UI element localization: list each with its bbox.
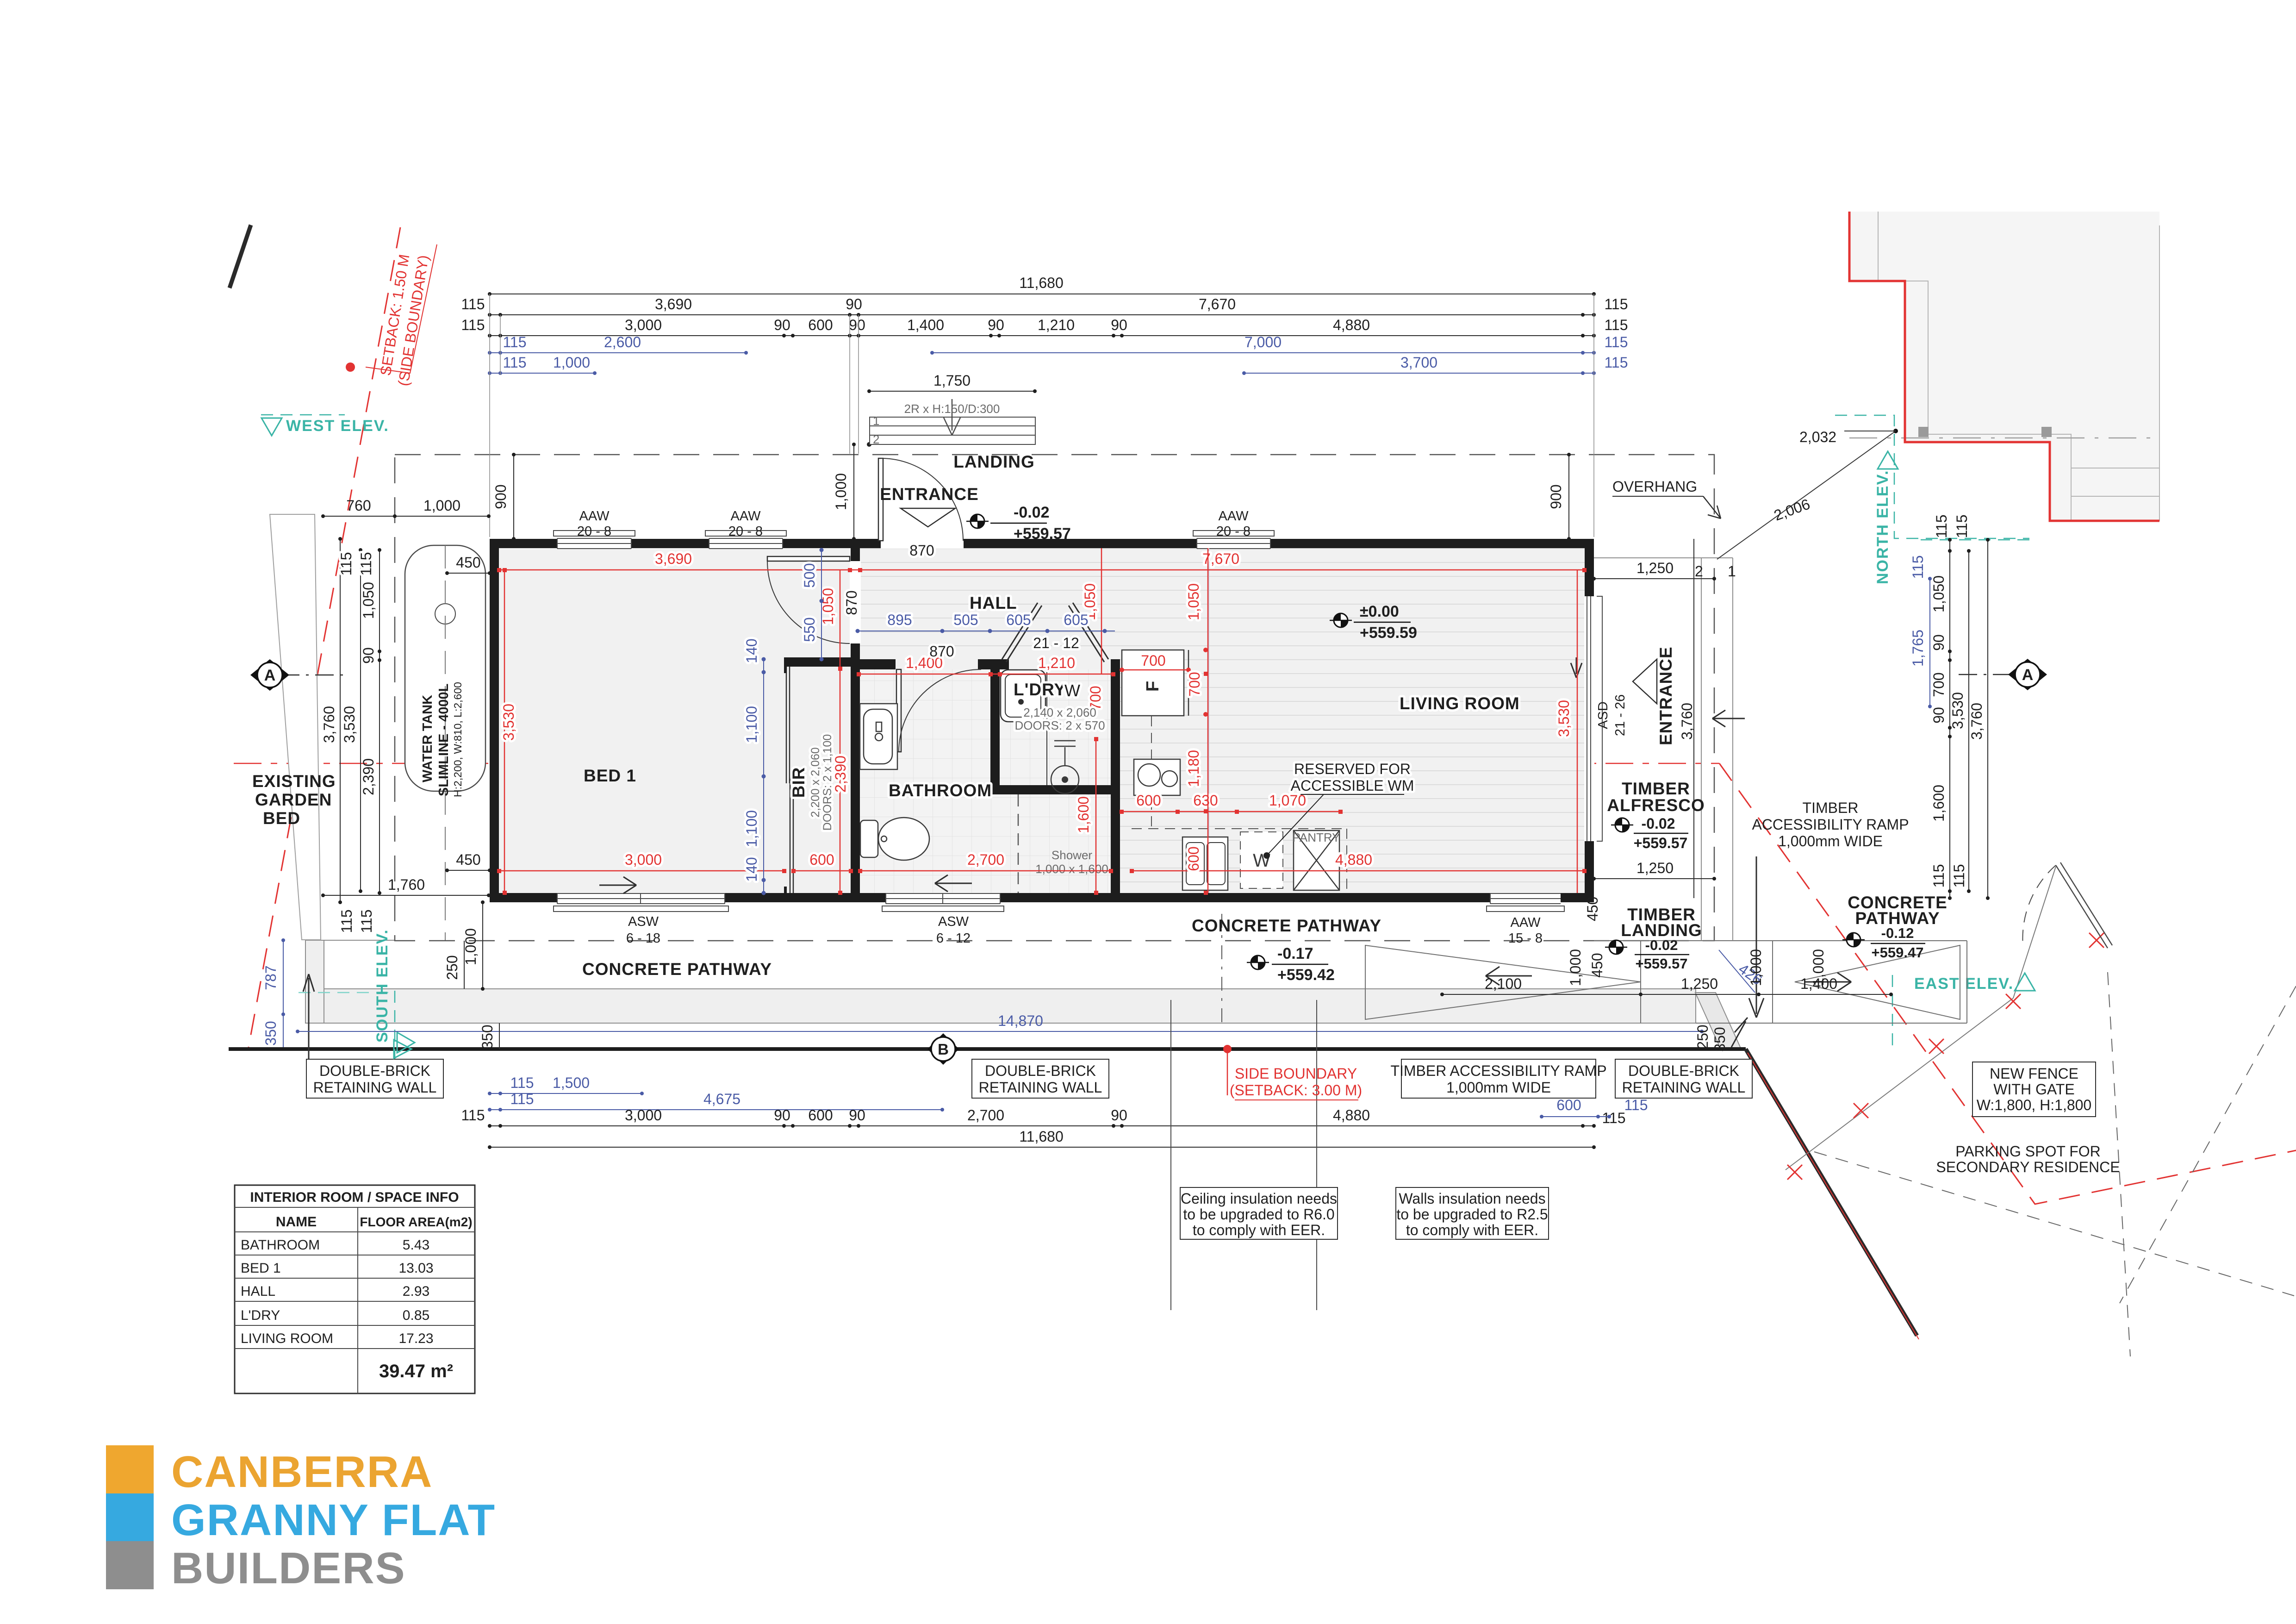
svg-text:SIDE BOUNDARY: SIDE BOUNDARY (1235, 1065, 1357, 1082)
svg-text:2R x H:150/D:300: 2R x H:150/D:300 (904, 402, 1000, 416)
svg-text:3,530: 3,530 (1949, 692, 1966, 729)
svg-text:TIMBER: TIMBER (1622, 779, 1690, 798)
svg-text:115: 115 (461, 317, 485, 333)
svg-text:4,880: 4,880 (1333, 317, 1370, 333)
svg-text:SLIMLINE - 4000L: SLIMLINE - 4000L (436, 684, 451, 796)
svg-text:HALL: HALL (970, 593, 1017, 612)
svg-text:1,600: 1,600 (1075, 796, 1092, 833)
svg-text:1: 1 (873, 414, 879, 428)
svg-text:7,670: 7,670 (1199, 296, 1236, 312)
svg-text:90: 90 (1930, 634, 1947, 651)
svg-text:AAW: AAW (1219, 509, 1249, 524)
svg-text:to be upgraded to R6.0: to be upgraded to R6.0 (1183, 1206, 1334, 1223)
svg-text:2.93: 2.93 (403, 1284, 429, 1299)
svg-text:20 - 8: 20 - 8 (1216, 524, 1251, 539)
svg-text:115: 115 (1933, 514, 1950, 538)
svg-text:ACCESSIBILITY RAMP: ACCESSIBILITY RAMP (1752, 816, 1909, 833)
svg-text:±0.00: ±0.00 (1360, 603, 1399, 620)
svg-text:ASD: ASD (1596, 701, 1611, 729)
svg-text:6 - 12: 6 - 12 (936, 931, 971, 946)
svg-text:140: 140 (743, 857, 760, 881)
svg-text:Shower: Shower (1052, 848, 1092, 862)
svg-text:Walls insulation needs: Walls insulation needs (1399, 1190, 1545, 1207)
svg-text:1,750: 1,750 (933, 372, 971, 389)
svg-text:115: 115 (1604, 317, 1628, 333)
svg-text:WATER TANK: WATER TANK (420, 695, 435, 782)
svg-text:90: 90 (988, 317, 1004, 333)
svg-text:Ceiling insulation needs: Ceiling insulation needs (1181, 1190, 1337, 1207)
svg-text:1,050: 1,050 (1185, 583, 1202, 620)
svg-text:115: 115 (1910, 555, 1926, 579)
svg-text:WITH GATE: WITH GATE (1993, 1081, 2074, 1098)
svg-text:90: 90 (849, 317, 865, 333)
svg-text:3,760: 3,760 (1968, 703, 1985, 740)
svg-text:1,000: 1,000 (833, 473, 849, 510)
svg-text:350: 350 (1711, 1027, 1728, 1051)
svg-text:90: 90 (1930, 707, 1947, 724)
svg-text:HALL: HALL (241, 1284, 275, 1299)
svg-text:90: 90 (1111, 1107, 1127, 1124)
svg-text:1,250: 1,250 (1636, 560, 1674, 576)
svg-text:TIMBER: TIMBER (1803, 800, 1859, 816)
svg-text:115: 115 (461, 296, 485, 312)
svg-text:EAST ELEV.: EAST ELEV. (1914, 975, 2014, 993)
svg-text:ASW: ASW (628, 914, 659, 929)
svg-text:DOORS: 2 x 570: DOORS: 2 x 570 (1014, 718, 1105, 732)
svg-text:115: 115 (1604, 334, 1628, 350)
svg-text:ENTRANCE: ENTRANCE (1656, 646, 1675, 745)
svg-text:AAW: AAW (579, 509, 610, 524)
svg-text:20 - 8: 20 - 8 (577, 524, 611, 539)
svg-text:-0.02: -0.02 (1014, 504, 1050, 521)
svg-text:AAW: AAW (731, 509, 761, 524)
svg-text:350: 350 (262, 1021, 279, 1045)
svg-text:870: 870 (843, 590, 860, 615)
svg-text:870: 870 (909, 542, 934, 559)
svg-text:+559.57: +559.57 (1634, 835, 1688, 851)
svg-text:1,000: 1,000 (1567, 949, 1584, 986)
svg-text:OVERHANG: OVERHANG (1612, 478, 1697, 495)
svg-text:3,530: 3,530 (1556, 700, 1572, 737)
svg-text:115: 115 (461, 1107, 485, 1124)
svg-text:115: 115 (1624, 1097, 1648, 1113)
svg-text:350: 350 (479, 1024, 496, 1049)
svg-text:115: 115 (1930, 864, 1947, 887)
svg-text:to be upgraded to R2.5: to be upgraded to R2.5 (1396, 1206, 1548, 1223)
svg-text:90: 90 (849, 1107, 865, 1124)
svg-text:115: 115 (503, 334, 526, 350)
svg-text:787: 787 (262, 965, 279, 990)
svg-text:ALFRESCO: ALFRESCO (1607, 796, 1705, 815)
svg-text:LIVING ROOM: LIVING ROOM (1400, 694, 1520, 713)
svg-text:21 - 26: 21 - 26 (1613, 694, 1628, 736)
svg-text:250: 250 (444, 955, 460, 980)
svg-text:1,250: 1,250 (1681, 975, 1718, 992)
svg-text:2,600: 2,600 (604, 334, 641, 350)
svg-text:BATHROOM: BATHROOM (889, 781, 992, 800)
svg-text:WEST ELEV.: WEST ELEV. (286, 417, 389, 435)
svg-text:15 - 8: 15 - 8 (1508, 931, 1543, 946)
svg-text:2,200 x 2,060: 2,200 x 2,060 (809, 747, 822, 818)
svg-text:GRANNY FLAT: GRANNY FLAT (171, 1495, 496, 1545)
svg-text:RESERVED FOR: RESERVED FOR (1294, 761, 1411, 777)
svg-text:RETAINING WALL: RETAINING WALL (313, 1079, 437, 1096)
svg-text:NAME: NAME (276, 1214, 317, 1230)
svg-text:CANBERRA: CANBERRA (171, 1447, 433, 1497)
svg-text:BED 1: BED 1 (241, 1261, 281, 1276)
svg-text:-0.02: -0.02 (1642, 815, 1675, 832)
svg-text:900: 900 (1548, 484, 1564, 509)
svg-text:SECONDARY RESIDENCE: SECONDARY RESIDENCE (1936, 1159, 2120, 1175)
svg-text:1: 1 (1728, 563, 1736, 580)
svg-text:115: 115 (338, 909, 355, 933)
svg-text:0.85: 0.85 (403, 1308, 429, 1323)
svg-text:500: 500 (801, 563, 818, 587)
svg-text:ASW: ASW (938, 914, 969, 929)
svg-text:3,690: 3,690 (655, 550, 692, 567)
svg-text:115: 115 (358, 552, 374, 575)
svg-text:11,680: 11,680 (1019, 1128, 1064, 1145)
svg-text:-0.12: -0.12 (1881, 925, 1914, 941)
svg-text:+559.57: +559.57 (1014, 525, 1071, 543)
svg-text:600: 600 (1556, 1097, 1581, 1113)
svg-text:3,000: 3,000 (625, 851, 662, 868)
svg-text:BATHROOM: BATHROOM (241, 1237, 320, 1253)
svg-text:3,530: 3,530 (341, 706, 358, 743)
svg-text:ENTRANCE: ENTRANCE (880, 485, 979, 504)
svg-text:115: 115 (1954, 514, 1970, 538)
svg-text:1,000: 1,000 (1810, 949, 1827, 986)
svg-text:4,880: 4,880 (1335, 851, 1372, 868)
svg-text:115: 115 (510, 1091, 534, 1107)
svg-text:FLOOR AREA(m2): FLOOR AREA(m2) (360, 1215, 472, 1229)
svg-text:600: 600 (1185, 846, 1202, 871)
svg-text:600: 600 (808, 1107, 833, 1124)
svg-text:-0.02: -0.02 (1645, 937, 1678, 953)
svg-text:6 - 18: 6 - 18 (626, 931, 660, 946)
svg-text:20 - 8: 20 - 8 (728, 524, 763, 539)
svg-text:3,000: 3,000 (625, 317, 662, 333)
svg-text:+559.59: +559.59 (1360, 624, 1417, 642)
svg-text:870: 870 (929, 643, 954, 660)
svg-text:TIMBER ACCESSIBILITY RAMP: TIMBER ACCESSIBILITY RAMP (1390, 1062, 1606, 1079)
svg-text:DOUBLE-BRICK: DOUBLE-BRICK (985, 1062, 1096, 1079)
svg-text:-0.17: -0.17 (1277, 945, 1313, 962)
svg-text:250: 250 (1694, 1024, 1711, 1049)
svg-text:3,690: 3,690 (655, 296, 692, 312)
svg-text:1,050: 1,050 (360, 582, 377, 619)
svg-text:+559.47: +559.47 (1872, 944, 1924, 961)
svg-text:21 - 12: 21 - 12 (1033, 635, 1079, 651)
svg-text:L'DRY: L'DRY (1014, 680, 1066, 699)
svg-text:600: 600 (809, 851, 834, 868)
svg-text:GARDEN: GARDEN (255, 790, 332, 809)
svg-text:CONCRETE PATHWAY: CONCRETE PATHWAY (1192, 916, 1381, 935)
svg-text:2,700: 2,700 (967, 1107, 1004, 1124)
svg-text:RETAINING WALL: RETAINING WALL (979, 1079, 1102, 1096)
svg-text:115: 115 (503, 354, 526, 371)
svg-text:5.43: 5.43 (403, 1237, 429, 1253)
svg-text:B: B (938, 1041, 949, 1058)
svg-text:11,680: 11,680 (1019, 275, 1064, 291)
svg-text:1,000: 1,000 (462, 928, 479, 965)
svg-text:3,530: 3,530 (500, 704, 517, 741)
svg-text:1,050: 1,050 (820, 588, 836, 625)
svg-text:1,000: 1,000 (553, 354, 590, 371)
svg-text:700: 700 (1141, 652, 1165, 669)
svg-text:17.23: 17.23 (398, 1331, 433, 1346)
svg-text:115: 115 (510, 1074, 534, 1091)
svg-text:NEW FENCE: NEW FENCE (1990, 1065, 2078, 1082)
svg-text:90: 90 (1111, 317, 1127, 333)
svg-text:900: 900 (492, 484, 509, 509)
svg-text:AAW: AAW (1511, 915, 1541, 930)
svg-text:3,700: 3,700 (1400, 354, 1437, 371)
svg-text:3,760: 3,760 (1679, 703, 1695, 740)
svg-text:1,500: 1,500 (553, 1074, 590, 1091)
svg-text:1,210: 1,210 (1038, 317, 1075, 333)
svg-text:1,250: 1,250 (1636, 860, 1674, 876)
svg-text:760: 760 (346, 497, 371, 514)
svg-text:90: 90 (774, 317, 790, 333)
svg-text:H:2,200, W:810, L:2,600: H:2,200, W:810, L:2,600 (452, 682, 464, 797)
svg-text:LANDING: LANDING (953, 452, 1035, 471)
svg-text:2,100: 2,100 (1485, 975, 1522, 992)
svg-text:1,100: 1,100 (743, 810, 760, 847)
svg-text:1,050: 1,050 (1930, 575, 1947, 612)
svg-text:600: 600 (808, 317, 833, 333)
svg-text:1,100: 1,100 (743, 706, 760, 743)
svg-text:PARKING SPOT FOR: PARKING SPOT FOR (1955, 1143, 2101, 1160)
svg-text:INTERIOR ROOM / SPACE INFO: INTERIOR ROOM / SPACE INFO (250, 1190, 459, 1205)
svg-text:DOUBLE-BRICK: DOUBLE-BRICK (319, 1062, 430, 1079)
svg-text:1,765: 1,765 (1910, 630, 1926, 667)
svg-text:RETAINING WALL: RETAINING WALL (1622, 1079, 1746, 1096)
svg-text:2,140 x 2,060: 2,140 x 2,060 (1023, 706, 1096, 719)
svg-text:700: 700 (1930, 672, 1947, 697)
svg-text:13.03: 13.03 (398, 1261, 433, 1276)
svg-text:39.47 m²: 39.47 m² (379, 1361, 453, 1381)
svg-text:2,390: 2,390 (832, 756, 849, 793)
svg-text:BED 1: BED 1 (584, 766, 636, 785)
svg-text:550: 550 (801, 617, 818, 642)
svg-text:+559.57: +559.57 (1636, 956, 1688, 972)
svg-text:A: A (264, 667, 276, 684)
svg-text:600: 600 (1136, 792, 1161, 809)
svg-text:14,870: 14,870 (998, 1012, 1043, 1029)
svg-text:700: 700 (1186, 672, 1203, 696)
svg-text:90: 90 (846, 296, 862, 312)
svg-text:1,400: 1,400 (907, 317, 944, 333)
svg-text:115: 115 (1951, 864, 1967, 887)
svg-text:90: 90 (360, 647, 377, 664)
svg-text:1,180: 1,180 (1185, 750, 1202, 787)
svg-text:450: 450 (456, 851, 480, 868)
svg-text:F: F (1143, 681, 1163, 692)
svg-text:1,210: 1,210 (1038, 655, 1075, 671)
svg-text:2: 2 (1695, 563, 1703, 580)
svg-text:115: 115 (1604, 354, 1628, 371)
svg-text:1,600: 1,600 (1930, 785, 1947, 822)
svg-text:to comply with EER.: to comply with EER. (1406, 1222, 1538, 1238)
svg-text:115: 115 (358, 909, 375, 933)
svg-text:605: 605 (1006, 612, 1031, 628)
svg-text:PANTRY: PANTRY (1292, 831, 1340, 844)
svg-text:SOUTH ELEV.: SOUTH ELEV. (373, 929, 391, 1043)
svg-text:to comply with EER.: to comply with EER. (1193, 1222, 1325, 1238)
svg-text:1,000mm WIDE: 1,000mm WIDE (1446, 1079, 1551, 1096)
svg-text:1,760: 1,760 (388, 876, 425, 893)
svg-text:2: 2 (873, 432, 879, 446)
svg-text:3,760: 3,760 (321, 706, 337, 743)
svg-text:4,675: 4,675 (703, 1091, 740, 1107)
svg-text:115: 115 (1604, 296, 1628, 312)
svg-text:3,000: 3,000 (625, 1107, 662, 1124)
svg-text:NORTH ELEV.: NORTH ELEV. (1874, 470, 1892, 584)
svg-text:2,032: 2,032 (1799, 429, 1836, 445)
svg-text:605: 605 (1064, 612, 1088, 628)
svg-text:895: 895 (887, 612, 912, 628)
svg-text:2,700: 2,700 (967, 851, 1004, 868)
svg-text:90: 90 (774, 1107, 790, 1124)
svg-text:1,000: 1,000 (423, 497, 460, 514)
svg-text:2,390: 2,390 (360, 758, 377, 795)
svg-text:(SETBACK: 3.00 M): (SETBACK: 3.00 M) (1230, 1082, 1362, 1099)
svg-text:1,000: 1,000 (1748, 949, 1764, 986)
svg-text:4,880: 4,880 (1333, 1107, 1370, 1124)
svg-text:450: 450 (456, 554, 480, 571)
svg-text:140: 140 (743, 638, 760, 663)
svg-text:115: 115 (338, 552, 355, 575)
svg-text:BIR: BIR (789, 767, 808, 798)
svg-text:BUILDERS: BUILDERS (171, 1543, 406, 1593)
svg-text:LIVING ROOM: LIVING ROOM (241, 1331, 333, 1346)
svg-text:630: 630 (1193, 792, 1218, 809)
svg-text:W:1,800, H:1,800: W:1,800, H:1,800 (1977, 1097, 2091, 1113)
svg-text:DOUBLE-BRICK: DOUBLE-BRICK (1628, 1062, 1739, 1079)
svg-text:ACCESSIBLE WM: ACCESSIBLE WM (1291, 777, 1414, 794)
svg-text:BED: BED (263, 809, 300, 828)
svg-text:450: 450 (1589, 953, 1605, 977)
svg-text:450: 450 (1584, 897, 1601, 921)
svg-text:CONCRETE PATHWAY: CONCRETE PATHWAY (582, 960, 772, 979)
svg-text:505: 505 (953, 612, 978, 628)
svg-text:L'DRY: L'DRY (241, 1308, 280, 1323)
svg-text:A: A (2022, 666, 2034, 684)
svg-text:7,000: 7,000 (1244, 334, 1282, 350)
svg-text:W: W (1064, 681, 1080, 700)
svg-text:+559.42: +559.42 (1277, 966, 1335, 984)
svg-text:EXISTING: EXISTING (252, 772, 336, 791)
svg-text:1,000mm WIDE: 1,000mm WIDE (1778, 833, 1883, 849)
svg-text:DOORS: 2 x 1,100: DOORS: 2 x 1,100 (821, 734, 834, 831)
svg-text:115: 115 (1602, 1110, 1625, 1126)
svg-text:1,000 x 1,600: 1,000 x 1,600 (1035, 862, 1108, 876)
